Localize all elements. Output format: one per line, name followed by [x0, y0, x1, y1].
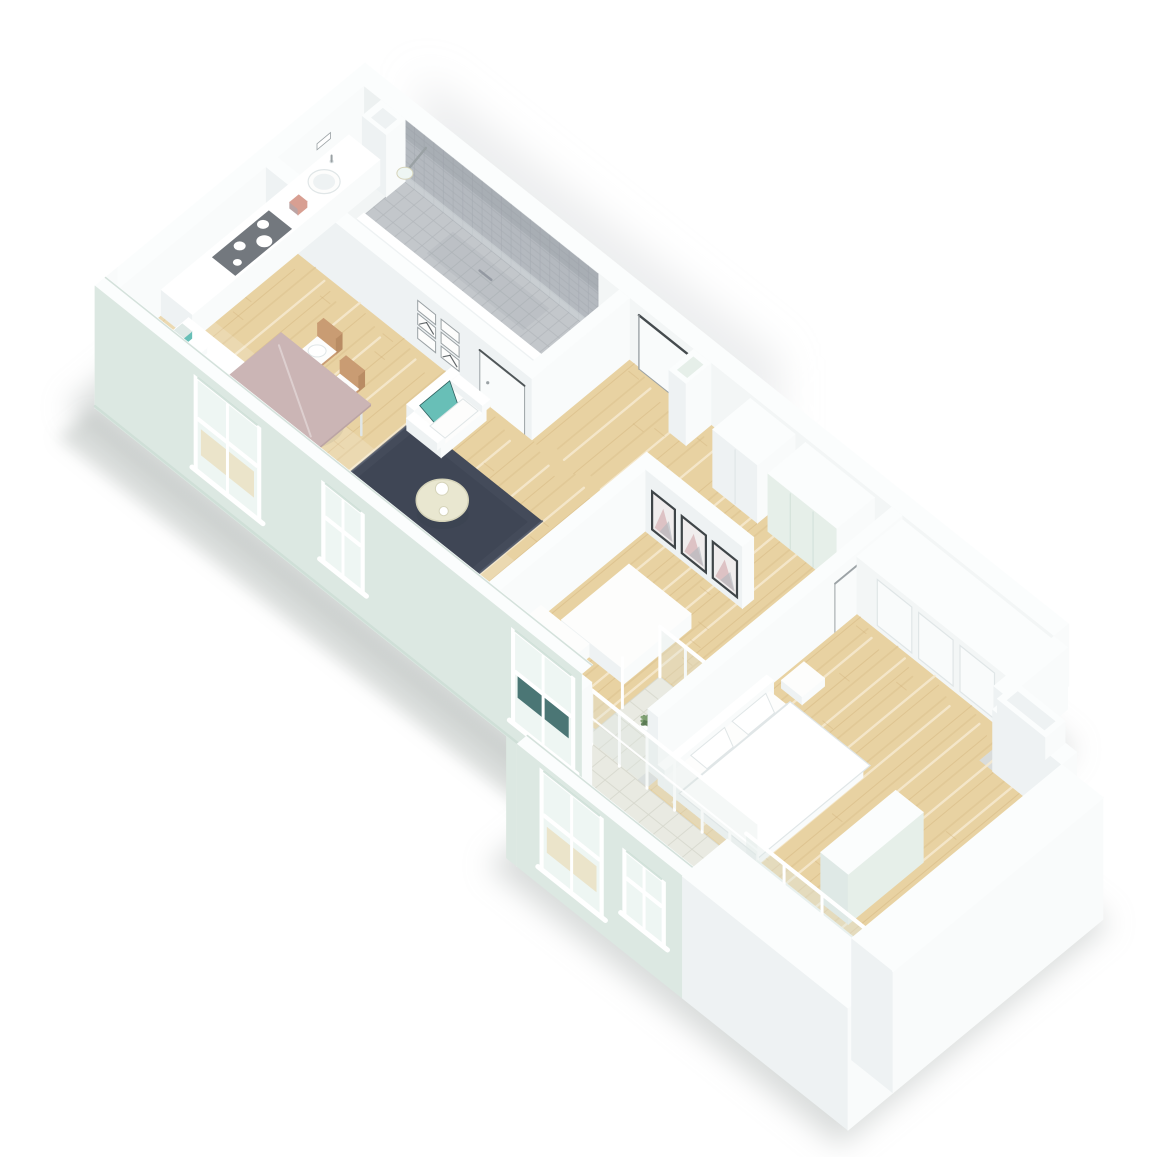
floorplan-svg	[0, 0, 1170, 1157]
kitchen-sink-basin	[313, 174, 335, 190]
gallery-wall-right	[742, 537, 753, 608]
bathroom-front-wall-right	[532, 369, 543, 440]
coffee-ball	[435, 482, 448, 495]
coffee-table	[416, 479, 468, 529]
coffee-ball	[439, 507, 448, 516]
chair-cushion	[308, 345, 326, 357]
garden-jog-wall-front	[507, 736, 517, 866]
burner	[256, 235, 272, 247]
burner	[234, 241, 246, 250]
apartment-3d-floorplan-render	[0, 0, 1170, 1157]
burner	[257, 220, 269, 229]
shower-head	[397, 167, 413, 179]
burner	[233, 259, 242, 266]
bathroom-door-handle	[486, 381, 489, 384]
